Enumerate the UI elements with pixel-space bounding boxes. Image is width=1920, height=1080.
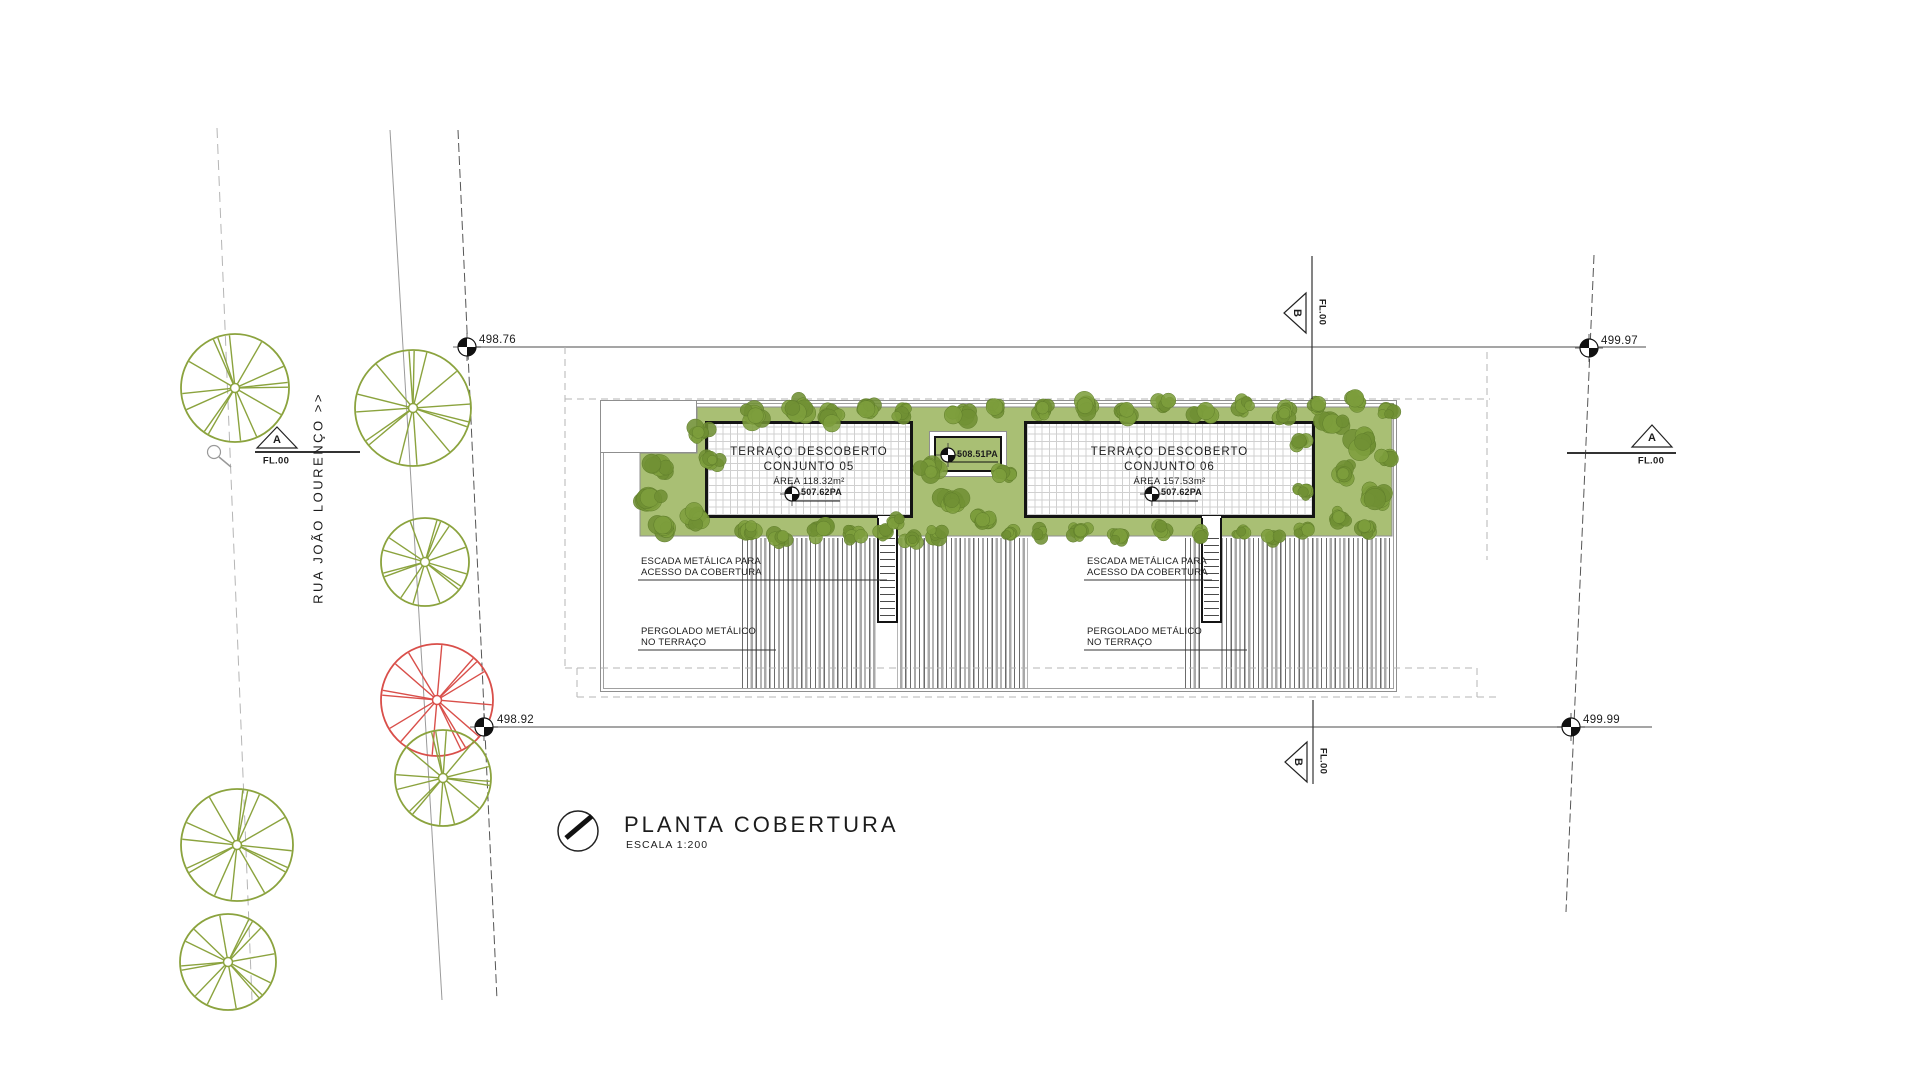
stair-wall — [1220, 518, 1222, 623]
stair-annotation-line2: ACESSO DA COBERTURA — [1087, 567, 1208, 578]
north-compass-icon — [558, 811, 598, 851]
stair-annotation-line2: ACESSO DA COBERTURA — [641, 567, 762, 578]
elevation-499-99: 499.99 — [1583, 714, 1620, 726]
terrace-05-labels: TERRAÇO DESCOBERTO CONJUNTO 05 ÁREA 118.… — [705, 446, 913, 487]
tree-symbol — [355, 350, 471, 466]
terrace-06-area: ÁREA 157.53m² — [1024, 476, 1315, 487]
section-a-left-letter: A — [273, 434, 281, 446]
terrace-05-area: ÁREA 118.32m² — [705, 476, 913, 487]
stair-annotation-right: ESCADA METÁLICA PARA ACESSO DA COBERTURA — [1087, 556, 1208, 578]
drawing-scale: ESCALA 1:200 — [626, 839, 708, 851]
terrace-05-title: TERRAÇO DESCOBERTO — [705, 446, 913, 458]
stair-annotation-left: ESCADA METÁLICA PARA ACESSO DA COBERTURA — [641, 556, 762, 578]
elevation-499-97: 499.97 — [1601, 335, 1638, 347]
tree-symbol — [381, 518, 469, 606]
terrace-05-level: 507.62PA — [801, 487, 842, 497]
pergola-annotation-line1: PERGOLADO METÁLICO — [641, 626, 756, 637]
elevation-498-92: 498.92 — [497, 714, 534, 726]
pergola-annotation-line2: NO TERRAÇO — [1087, 637, 1202, 648]
section-b-bottom-level: FL.00 — [1318, 748, 1329, 774]
pergola-annotation-right: PERGOLADO METÁLICO NO TERRAÇO — [1087, 626, 1202, 648]
section-b-bottom-letter: B — [1292, 758, 1304, 766]
section-b-top-letter: B — [1291, 309, 1303, 317]
roof-slab-notch — [600, 400, 697, 453]
street-trees — [180, 334, 493, 1010]
stair-annotation-line1: ESCADA METÁLICA PARA — [641, 556, 762, 567]
section-a-left-level: FL.00 — [263, 456, 289, 467]
terrace-06-labels: TERRAÇO DESCOBERTO CONJUNTO 06 ÁREA 157.… — [1024, 446, 1315, 487]
stair-wall — [877, 518, 879, 623]
street-name: RUA JOÃO LOURENÇO >> — [311, 392, 326, 604]
terrace-05-subtitle: CONJUNTO 05 — [705, 461, 913, 473]
elevation-498-76: 498.76 — [479, 334, 516, 346]
stair-treads — [1204, 538, 1219, 622]
tree-symbol — [180, 914, 276, 1010]
pergola-annotation-line1: PERGOLADO METÁLICO — [1087, 626, 1202, 637]
section-b-top-level: FL.00 — [1317, 299, 1328, 325]
pergola-annotation-line2: NO TERRAÇO — [641, 637, 756, 648]
drawing-title: PLANTA COBERTURA — [624, 812, 899, 838]
section-a-right-level: FL.00 — [1638, 456, 1664, 467]
street-fixture-icon — [208, 446, 232, 468]
roof-plan-canvas: RUA JOÃO LOURENÇO >> 498.76 498.92 499.9… — [0, 0, 1920, 1080]
metal-stair-right — [1202, 516, 1221, 688]
terrace-06-title: TERRAÇO DESCOBERTO — [1024, 446, 1315, 458]
tree-symbol — [181, 789, 293, 901]
tree-symbol — [395, 730, 491, 826]
stair-treads — [880, 538, 895, 622]
section-a-right-letter: A — [1648, 432, 1656, 444]
stair-annotation-line1: ESCADA METÁLICA PARA — [1087, 556, 1208, 567]
tree-symbol — [181, 334, 289, 442]
metal-stair-left — [878, 516, 897, 688]
roof-access-level: 508.51PA — [957, 449, 998, 459]
terrace-06-level: 507.62PA — [1161, 487, 1202, 497]
tree-symbol-red — [381, 644, 493, 756]
terrace-06-subtitle: CONJUNTO 06 — [1024, 461, 1315, 473]
stair-wall — [896, 518, 898, 623]
pergola-annotation-left: PERGOLADO METÁLICO NO TERRAÇO — [641, 626, 756, 648]
